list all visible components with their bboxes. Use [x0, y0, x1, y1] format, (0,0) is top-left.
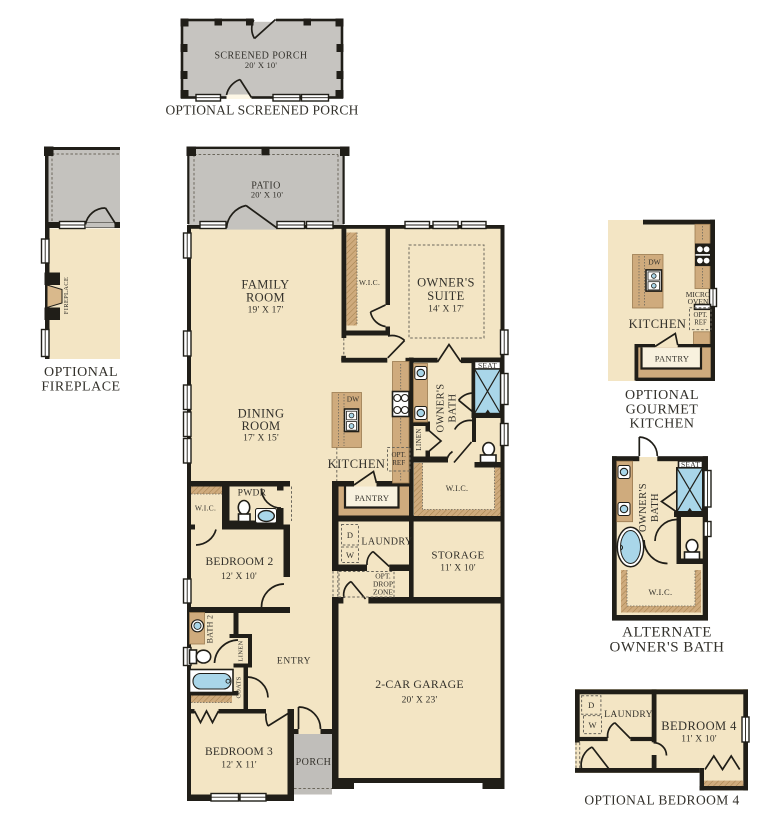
svg-text:BATH: BATH	[447, 393, 458, 422]
svg-text:PORCH: PORCH	[296, 757, 332, 768]
svg-text:2-CAR GARAGE: 2-CAR GARAGE	[375, 677, 464, 691]
svg-text:20' X 10': 20' X 10'	[251, 190, 284, 200]
svg-text:ENTRY: ENTRY	[277, 657, 311, 667]
svg-text:KITCHEN: KITCHEN	[629, 317, 687, 331]
svg-text:OWNER'S: OWNER'S	[435, 383, 446, 432]
svg-text:FIREPLACE: FIREPLACE	[41, 380, 120, 395]
svg-text:OWNER'S BATH: OWNER'S BATH	[610, 640, 725, 656]
svg-text:11' X 10': 11' X 10'	[681, 735, 717, 745]
svg-text:PANTRY: PANTRY	[355, 493, 390, 503]
svg-text:COATS: COATS	[235, 676, 242, 698]
svg-text:OWNER'S: OWNER'S	[417, 276, 475, 290]
svg-text:DW: DW	[347, 395, 360, 404]
svg-text:FIREPLACE: FIREPLACE	[63, 277, 70, 314]
svg-text:LINEN: LINEN	[415, 428, 423, 451]
svg-text:W.I.C.: W.I.C.	[359, 278, 380, 287]
svg-text:ROOM: ROOM	[241, 419, 280, 433]
svg-text:W.I.C.: W.I.C.	[195, 504, 216, 513]
svg-text:GOURMET: GOURMET	[626, 403, 699, 418]
svg-text:BEDROOM 3: BEDROOM 3	[205, 746, 273, 758]
svg-text:LAUNDRY: LAUNDRY	[361, 537, 412, 548]
svg-text:D: D	[588, 700, 594, 710]
svg-text:LAUNDRY: LAUNDRY	[604, 710, 653, 720]
svg-text:W: W	[588, 720, 596, 730]
svg-text:PANTRY: PANTRY	[655, 354, 690, 364]
svg-text:OWNER'S: OWNER'S	[638, 483, 649, 532]
svg-text:OPTIONAL BEDROOM 4: OPTIONAL BEDROOM 4	[584, 793, 739, 808]
svg-text:20' X 10': 20' X 10'	[245, 60, 278, 70]
svg-text:STORAGE: STORAGE	[431, 550, 484, 562]
svg-text:W.I.C.: W.I.C.	[446, 484, 469, 493]
svg-text:12' X 11': 12' X 11'	[221, 761, 257, 771]
svg-text:19' X 17': 19' X 17'	[248, 306, 284, 316]
svg-text:ROOM: ROOM	[246, 291, 285, 305]
svg-text:OPT.: OPT.	[693, 312, 707, 319]
svg-text:ZONE: ZONE	[373, 588, 393, 597]
svg-text:ALTERNATE: ALTERNATE	[622, 625, 712, 641]
svg-text:OPT.: OPT.	[391, 451, 406, 459]
svg-text:KITCHEN: KITCHEN	[630, 417, 695, 432]
svg-text:BEDROOM 4: BEDROOM 4	[661, 719, 737, 733]
svg-text:OPTIONAL SCREENED PORCH: OPTIONAL SCREENED PORCH	[165, 103, 358, 118]
svg-text:BEDROOM 2: BEDROOM 2	[206, 556, 274, 568]
svg-text:KITCHEN: KITCHEN	[328, 457, 386, 471]
svg-text:LINEN: LINEN	[237, 641, 244, 662]
svg-text:11' X 10': 11' X 10'	[440, 564, 476, 574]
svg-text:12' X 10': 12' X 10'	[221, 572, 257, 582]
svg-text:W: W	[346, 550, 354, 560]
svg-text:DW: DW	[648, 258, 661, 267]
svg-text:REF: REF	[392, 459, 405, 467]
svg-text:D: D	[347, 530, 353, 540]
svg-text:PWDR: PWDR	[238, 489, 267, 499]
svg-text:FAMILY: FAMILY	[241, 278, 289, 292]
svg-text:BATH: BATH	[650, 493, 661, 522]
svg-text:SUITE: SUITE	[427, 289, 464, 303]
svg-text:W.I.C.: W.I.C.	[649, 587, 673, 597]
svg-text:20' X 23': 20' X 23'	[402, 696, 438, 706]
svg-text:OPTIONAL: OPTIONAL	[625, 388, 699, 403]
svg-text:REF: REF	[694, 320, 707, 327]
svg-text:17' X 15': 17' X 15'	[243, 434, 279, 444]
svg-text:OPTIONAL: OPTIONAL	[44, 365, 118, 380]
svg-text:BATH 2: BATH 2	[205, 615, 214, 644]
svg-text:14' X 17': 14' X 17'	[428, 305, 464, 315]
